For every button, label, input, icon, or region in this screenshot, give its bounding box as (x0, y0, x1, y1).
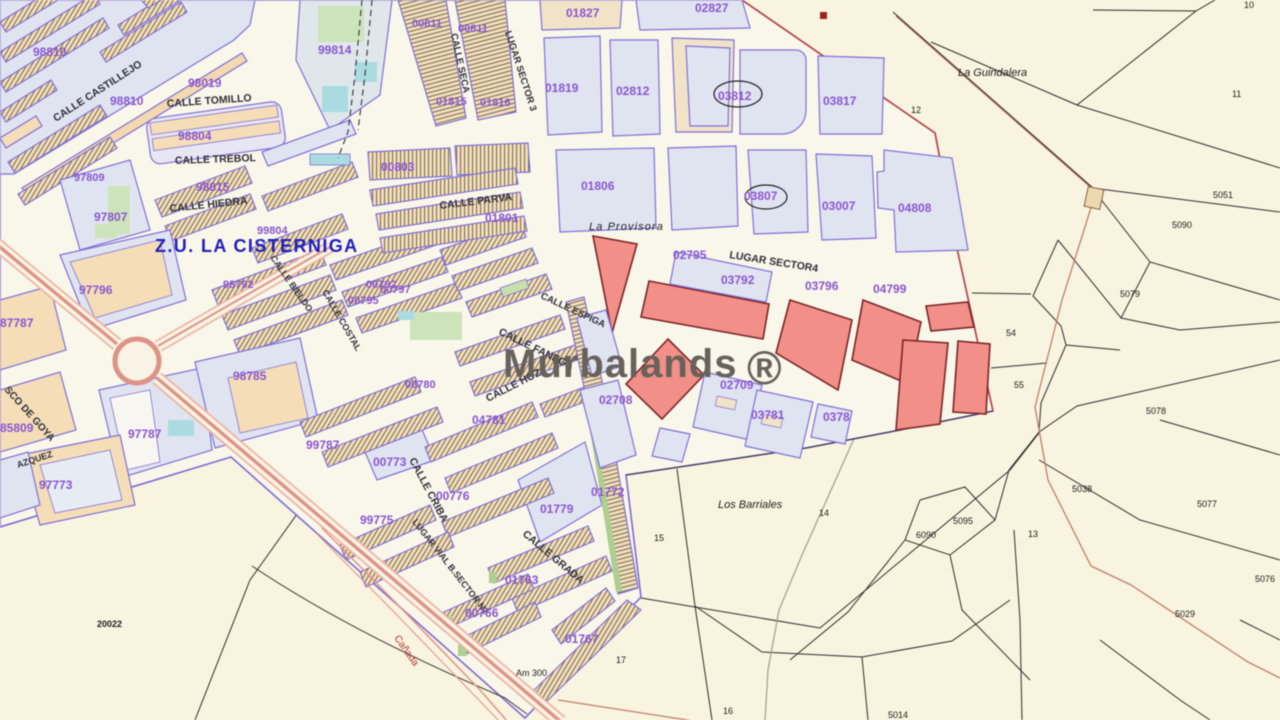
svg-text:Los Barriales: Los Barriales (718, 499, 783, 511)
svg-text:5029: 5029 (1175, 609, 1195, 619)
svg-text:97809: 97809 (74, 172, 105, 184)
svg-text:10: 10 (1244, 0, 1254, 10)
svg-text:55: 55 (1014, 380, 1024, 390)
svg-text:La Guindalera: La Guindalera (958, 67, 1027, 79)
svg-text:00766: 00766 (465, 606, 499, 620)
svg-text:03007: 03007 (822, 199, 856, 213)
svg-text:0378: 0378 (823, 410, 850, 424)
svg-text:04799: 04799 (873, 282, 907, 296)
svg-text:02812: 02812 (616, 84, 650, 98)
svg-text:03796: 03796 (805, 279, 839, 293)
svg-text:01816: 01816 (480, 97, 511, 109)
svg-text:00776: 00776 (436, 489, 470, 503)
svg-text:04781: 04781 (472, 413, 506, 427)
svg-text:13: 13 (1028, 529, 1038, 539)
svg-text:11: 11 (1232, 89, 1241, 99)
svg-text:5051: 5051 (1213, 190, 1233, 200)
svg-text:03781: 03781 (751, 408, 785, 422)
svg-text:97796: 97796 (79, 283, 113, 297)
svg-text:97787: 97787 (128, 427, 162, 441)
svg-text:99787: 99787 (306, 438, 340, 452)
svg-text:01772: 01772 (591, 485, 625, 499)
svg-text:Z.U. LA CISTERNIGA: Z.U. LA CISTERNIGA (155, 236, 359, 256)
svg-text:02827: 02827 (695, 1, 729, 15)
svg-text:6090: 6090 (916, 530, 936, 540)
svg-text:5078: 5078 (1146, 406, 1166, 416)
svg-text:98804: 98804 (178, 129, 212, 143)
svg-text:Murbalands: Murbalands (503, 342, 737, 386)
svg-text:01815: 01815 (436, 96, 467, 108)
svg-text:01819: 01819 (545, 81, 579, 95)
svg-text:20022: 20022 (97, 619, 122, 629)
svg-text:00811: 00811 (412, 18, 442, 30)
svg-text:12: 12 (911, 105, 921, 115)
svg-text:01767: 01767 (565, 632, 599, 646)
svg-text:87787: 87787 (0, 316, 34, 330)
svg-text:00797: 00797 (380, 284, 411, 296)
svg-text:00811: 00811 (458, 23, 488, 35)
svg-text:5038: 5038 (1072, 484, 1092, 494)
svg-text:00780: 00780 (405, 379, 436, 391)
svg-text:98792: 98792 (223, 279, 254, 291)
svg-text:98019: 98019 (188, 76, 222, 90)
svg-text:®: ® (747, 341, 782, 394)
svg-text:98810: 98810 (110, 94, 144, 108)
svg-text:5077: 5077 (1197, 499, 1217, 509)
svg-text:03792: 03792 (721, 273, 755, 287)
svg-text:5076: 5076 (1255, 574, 1275, 584)
svg-text:15: 15 (654, 533, 664, 543)
svg-text:La Provisora: La Provisora (589, 221, 664, 233)
svg-text:98785: 98785 (233, 369, 267, 383)
svg-text:Am 300: Am 300 (516, 668, 547, 678)
svg-text:01801: 01801 (485, 211, 519, 225)
svg-text:97773: 97773 (39, 478, 73, 492)
svg-text:00795: 00795 (348, 295, 379, 307)
svg-text:5090: 5090 (1172, 220, 1192, 230)
svg-text:14: 14 (819, 508, 829, 518)
svg-text:99775: 99775 (360, 513, 394, 527)
svg-text:54: 54 (1006, 328, 1016, 338)
svg-text:97807: 97807 (94, 210, 128, 224)
svg-text:5095: 5095 (953, 516, 973, 526)
svg-text:01763: 01763 (505, 573, 539, 587)
svg-text:5079: 5079 (1120, 289, 1140, 299)
svg-text:01827: 01827 (566, 6, 600, 20)
svg-text:16: 16 (723, 706, 733, 716)
svg-text:85809: 85809 (0, 421, 34, 435)
svg-text:04808: 04808 (898, 201, 932, 215)
svg-text:03812: 03812 (718, 89, 752, 103)
svg-text:02708: 02708 (599, 393, 633, 407)
svg-text:00773: 00773 (373, 455, 407, 469)
svg-text:99814: 99814 (318, 43, 352, 57)
svg-text:00803: 00803 (381, 160, 415, 174)
svg-text:03807: 03807 (744, 189, 778, 203)
svg-text:03817: 03817 (823, 94, 857, 108)
svg-text:02795: 02795 (673, 248, 707, 262)
svg-text:01779: 01779 (540, 502, 574, 516)
svg-text:17: 17 (616, 655, 626, 665)
svg-text:98815: 98815 (196, 180, 230, 194)
svg-text:5014: 5014 (888, 710, 908, 720)
svg-text:98810: 98810 (33, 45, 67, 59)
svg-text:01806: 01806 (581, 179, 615, 193)
